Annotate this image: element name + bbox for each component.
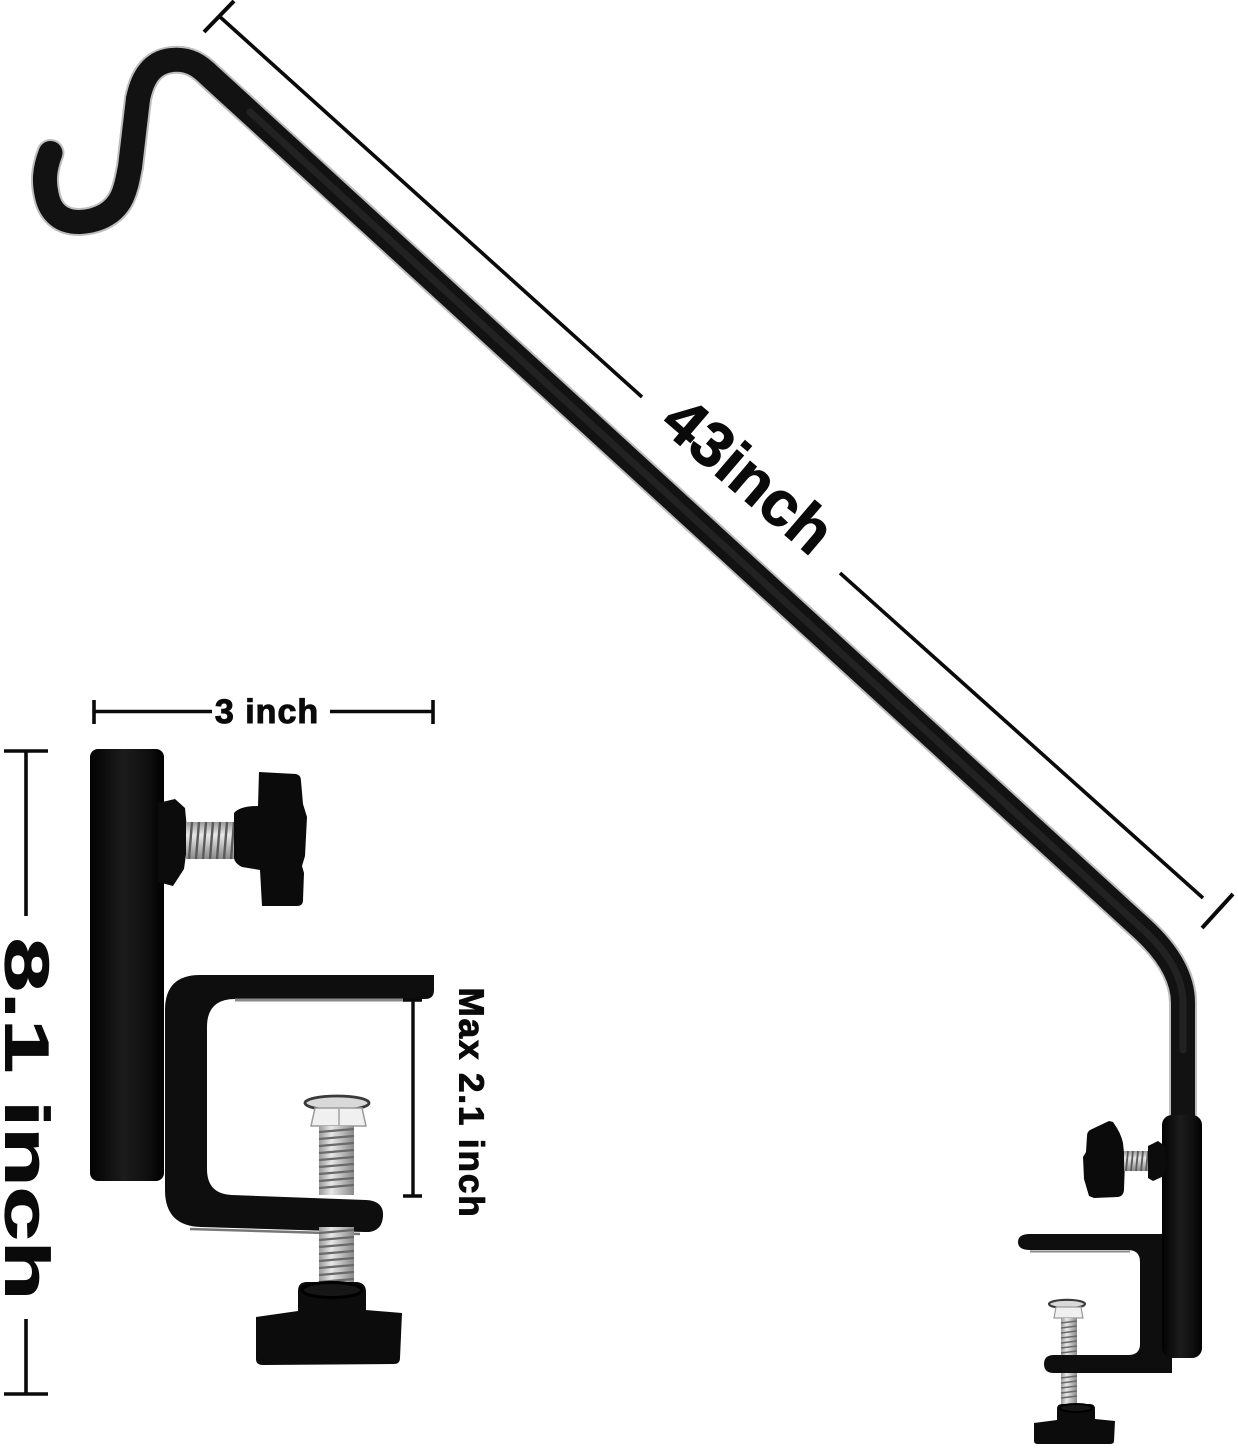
svg-text:Max 2.1 inch: Max 2.1 inch bbox=[452, 988, 491, 1219]
svg-text:43inch: 43inch bbox=[649, 384, 847, 568]
svg-text:8.1 inch: 8.1 inch bbox=[0, 938, 61, 1300]
svg-text:3 inch: 3 inch bbox=[215, 693, 319, 731]
